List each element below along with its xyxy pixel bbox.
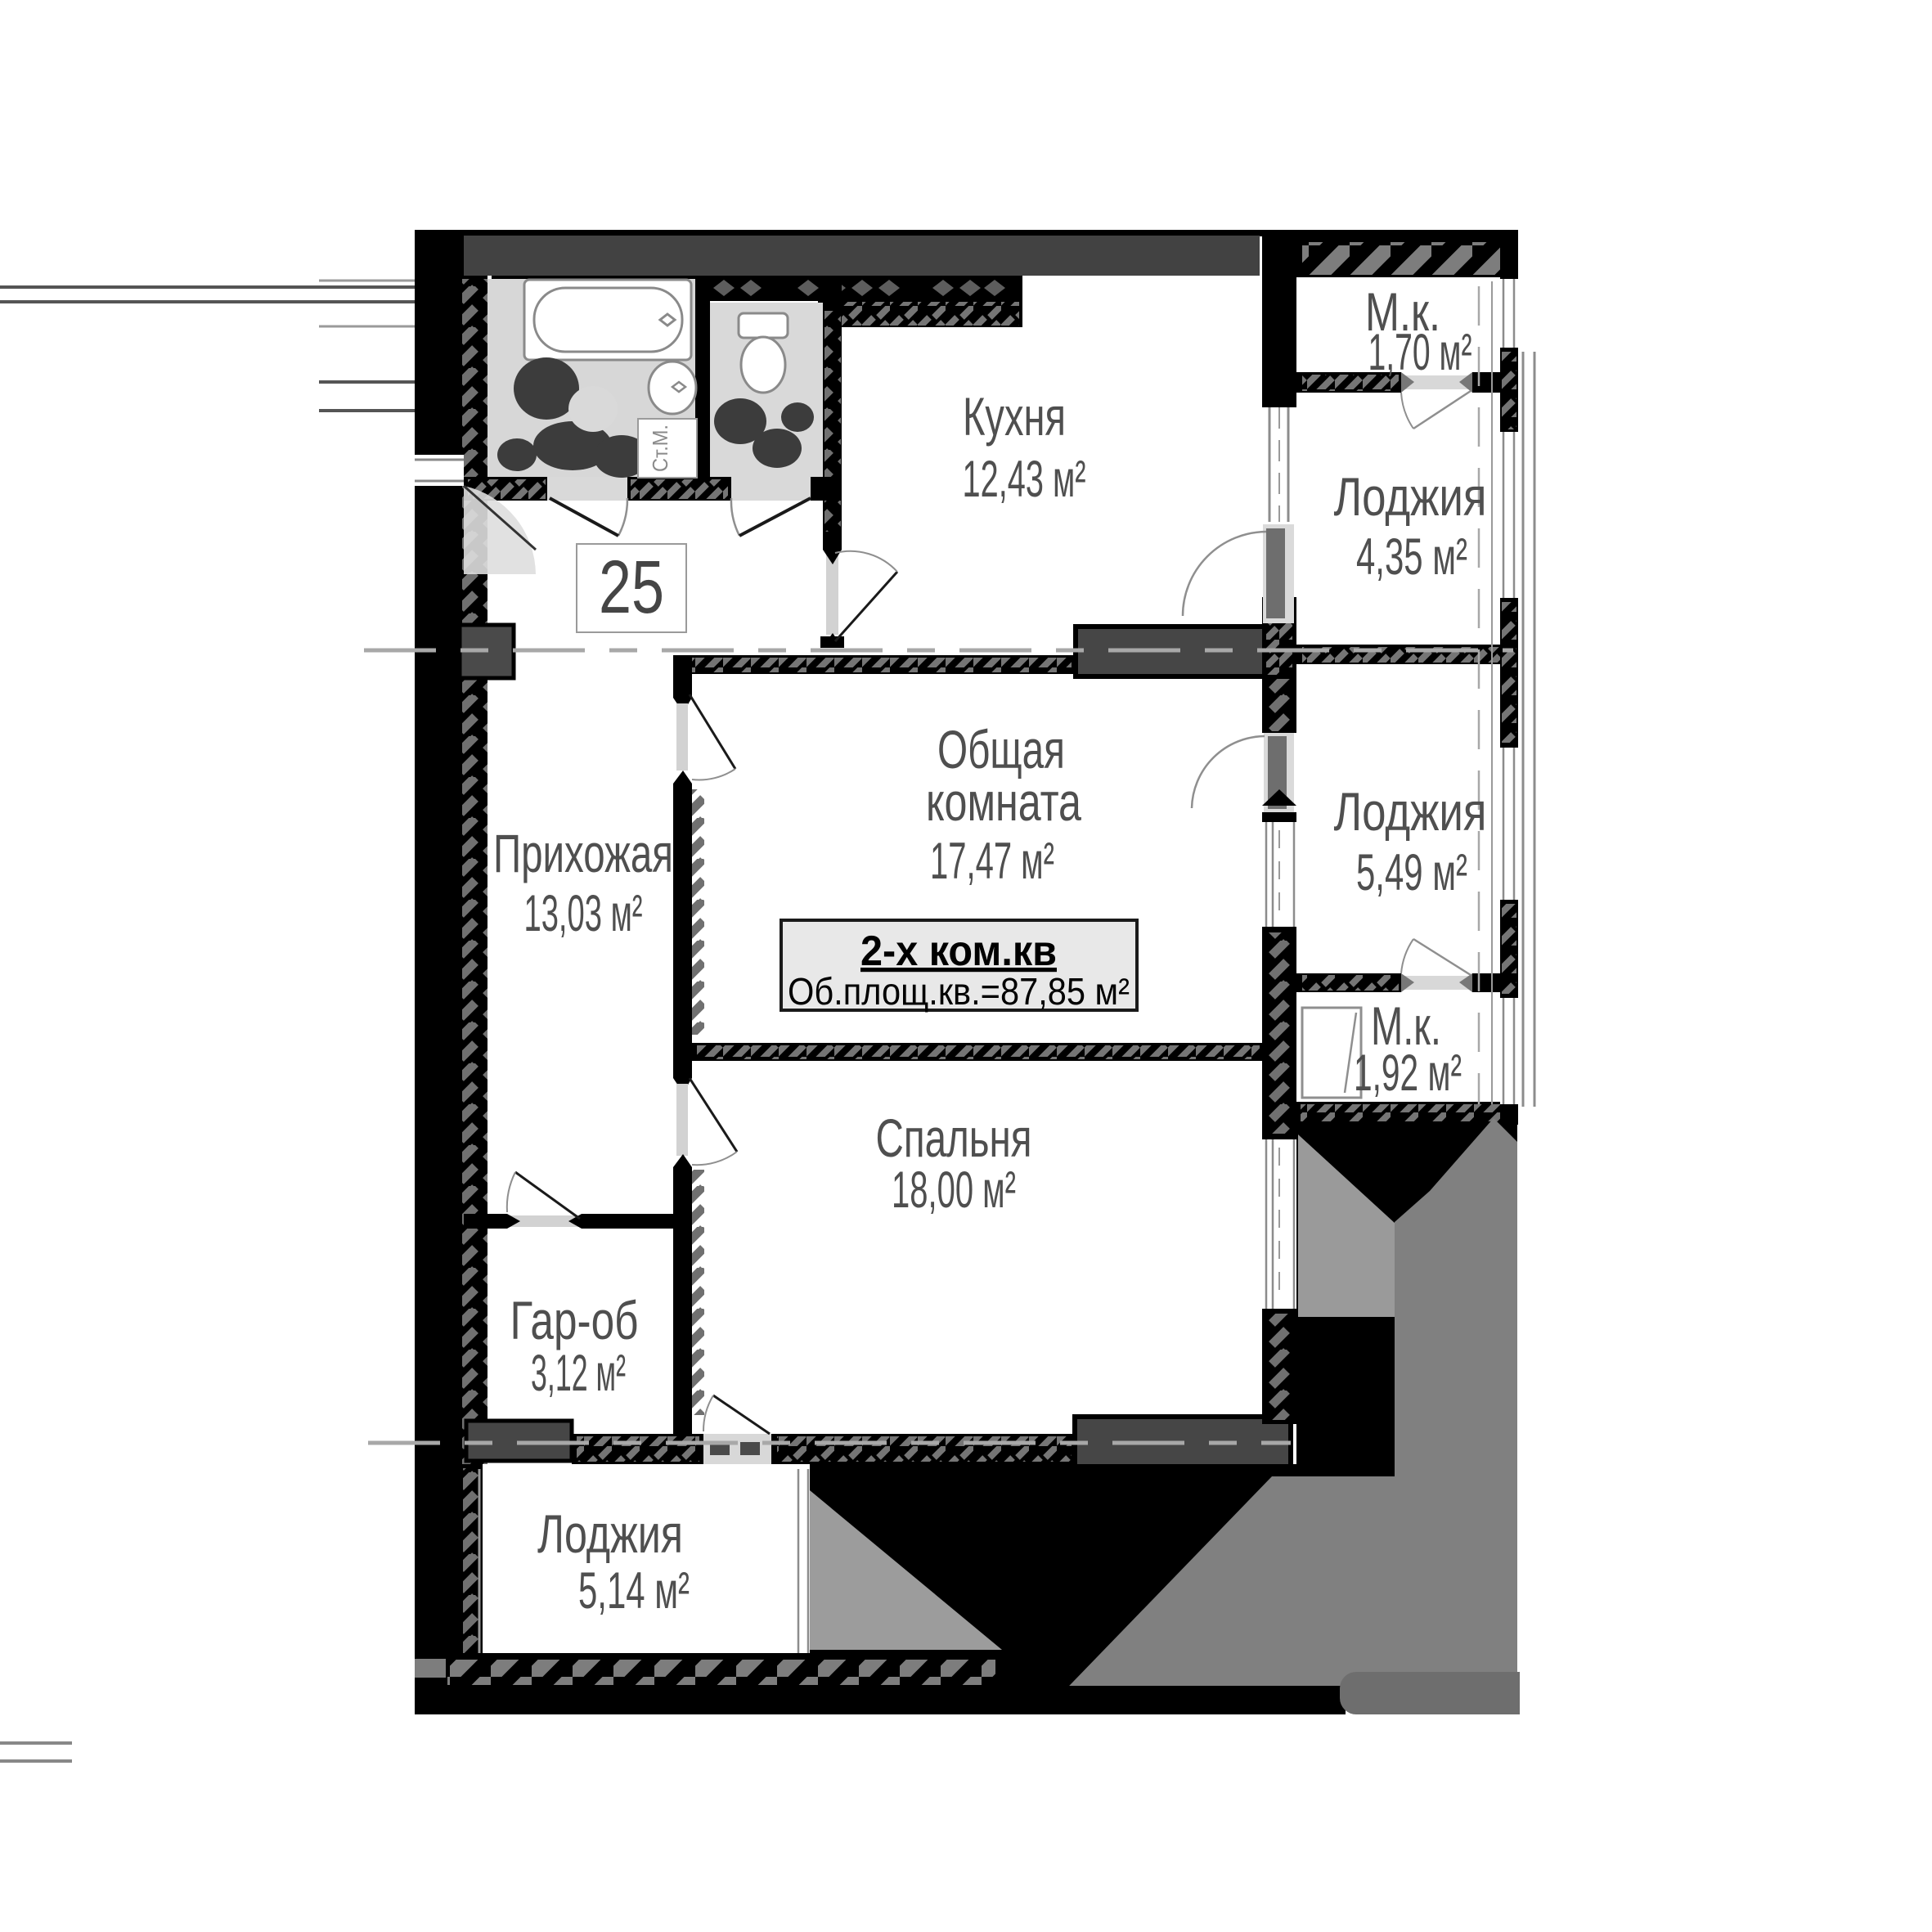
svg-text:1,92 м²: 1,92 м² (1354, 1045, 1462, 1102)
svg-text:12,43 м²: 12,43 м² (963, 451, 1086, 508)
svg-text:2-х ком.кв: 2-х ком.кв (860, 928, 1057, 975)
svg-text:25: 25 (599, 546, 664, 629)
svg-text:5,14 м²: 5,14 м² (578, 1562, 690, 1620)
svg-text:Об.площ.кв.=87,85 м²: Об.площ.кв.=87,85 м² (788, 970, 1130, 1013)
svg-text:Общая: Общая (937, 719, 1065, 780)
svg-text:комната: комната (926, 771, 1081, 832)
svg-text:5,49 м²: 5,49 м² (1356, 844, 1467, 901)
svg-text:Кухня: Кухня (963, 386, 1066, 447)
svg-text:Прихожая: Прихожая (493, 823, 673, 883)
svg-text:17,47 м²: 17,47 м² (930, 833, 1054, 890)
svg-text:18,00 м²: 18,00 м² (892, 1161, 1016, 1219)
svg-text:Гар-об: Гар-об (510, 1290, 639, 1350)
svg-text:13,03 м²: 13,03 м² (524, 885, 643, 942)
svg-text:Лоджия: Лоджия (537, 1503, 683, 1564)
svg-text:Лоджия: Лоджия (1334, 781, 1487, 842)
svg-text:Спальня: Спальня (876, 1108, 1032, 1168)
svg-text:Лоджия: Лоджия (1334, 466, 1487, 527)
svg-text:3,12 м²: 3,12 м² (531, 1345, 626, 1402)
svg-text:4,35 м²: 4,35 м² (1356, 528, 1467, 586)
svg-text:Ст.М.: Ст.М. (648, 425, 672, 472)
svg-text:1,70 м²: 1,70 м² (1368, 324, 1472, 381)
